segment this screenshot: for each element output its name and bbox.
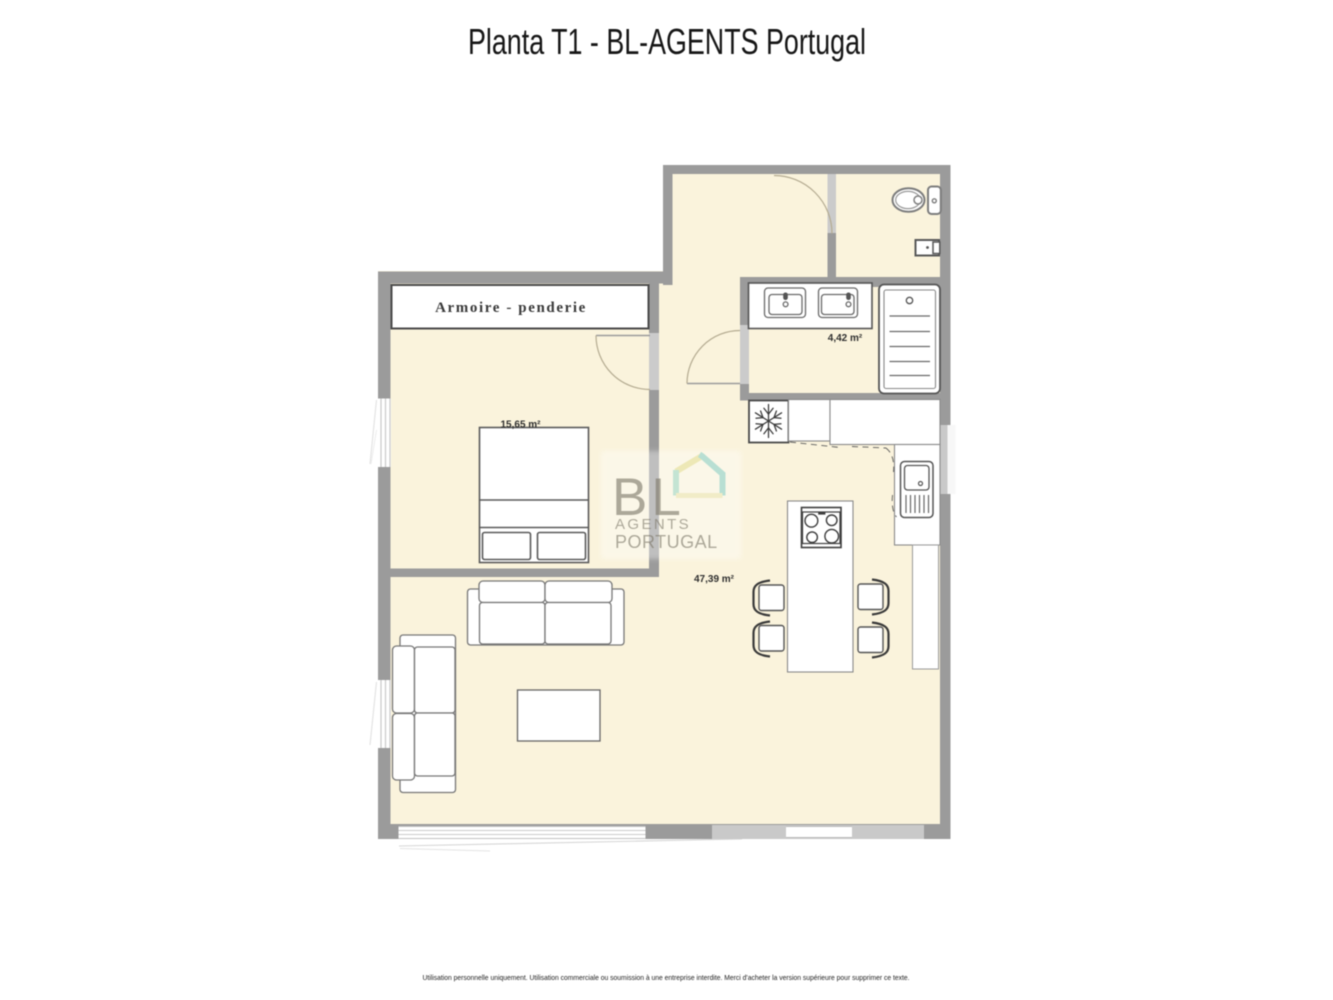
- svg-text:15,65 m²: 15,65 m²: [500, 420, 541, 431]
- svg-text:4,42 m²: 4,42 m²: [828, 333, 863, 344]
- svg-text:Planta T1 - BL-AGENTS Portugal: Planta T1 - BL-AGENTS Portugal: [468, 21, 866, 62]
- svg-text:Armoire - penderie: Armoire - penderie: [435, 300, 587, 316]
- svg-text:Utilisation personnelle unique: Utilisation personnelle uniquement. Util…: [423, 973, 910, 982]
- svg-text:47,39 m²: 47,39 m²: [694, 574, 735, 585]
- svg-text:PORTUGAL: PORTUGAL: [615, 532, 718, 552]
- svg-text:AGENTS: AGENTS: [615, 516, 691, 533]
